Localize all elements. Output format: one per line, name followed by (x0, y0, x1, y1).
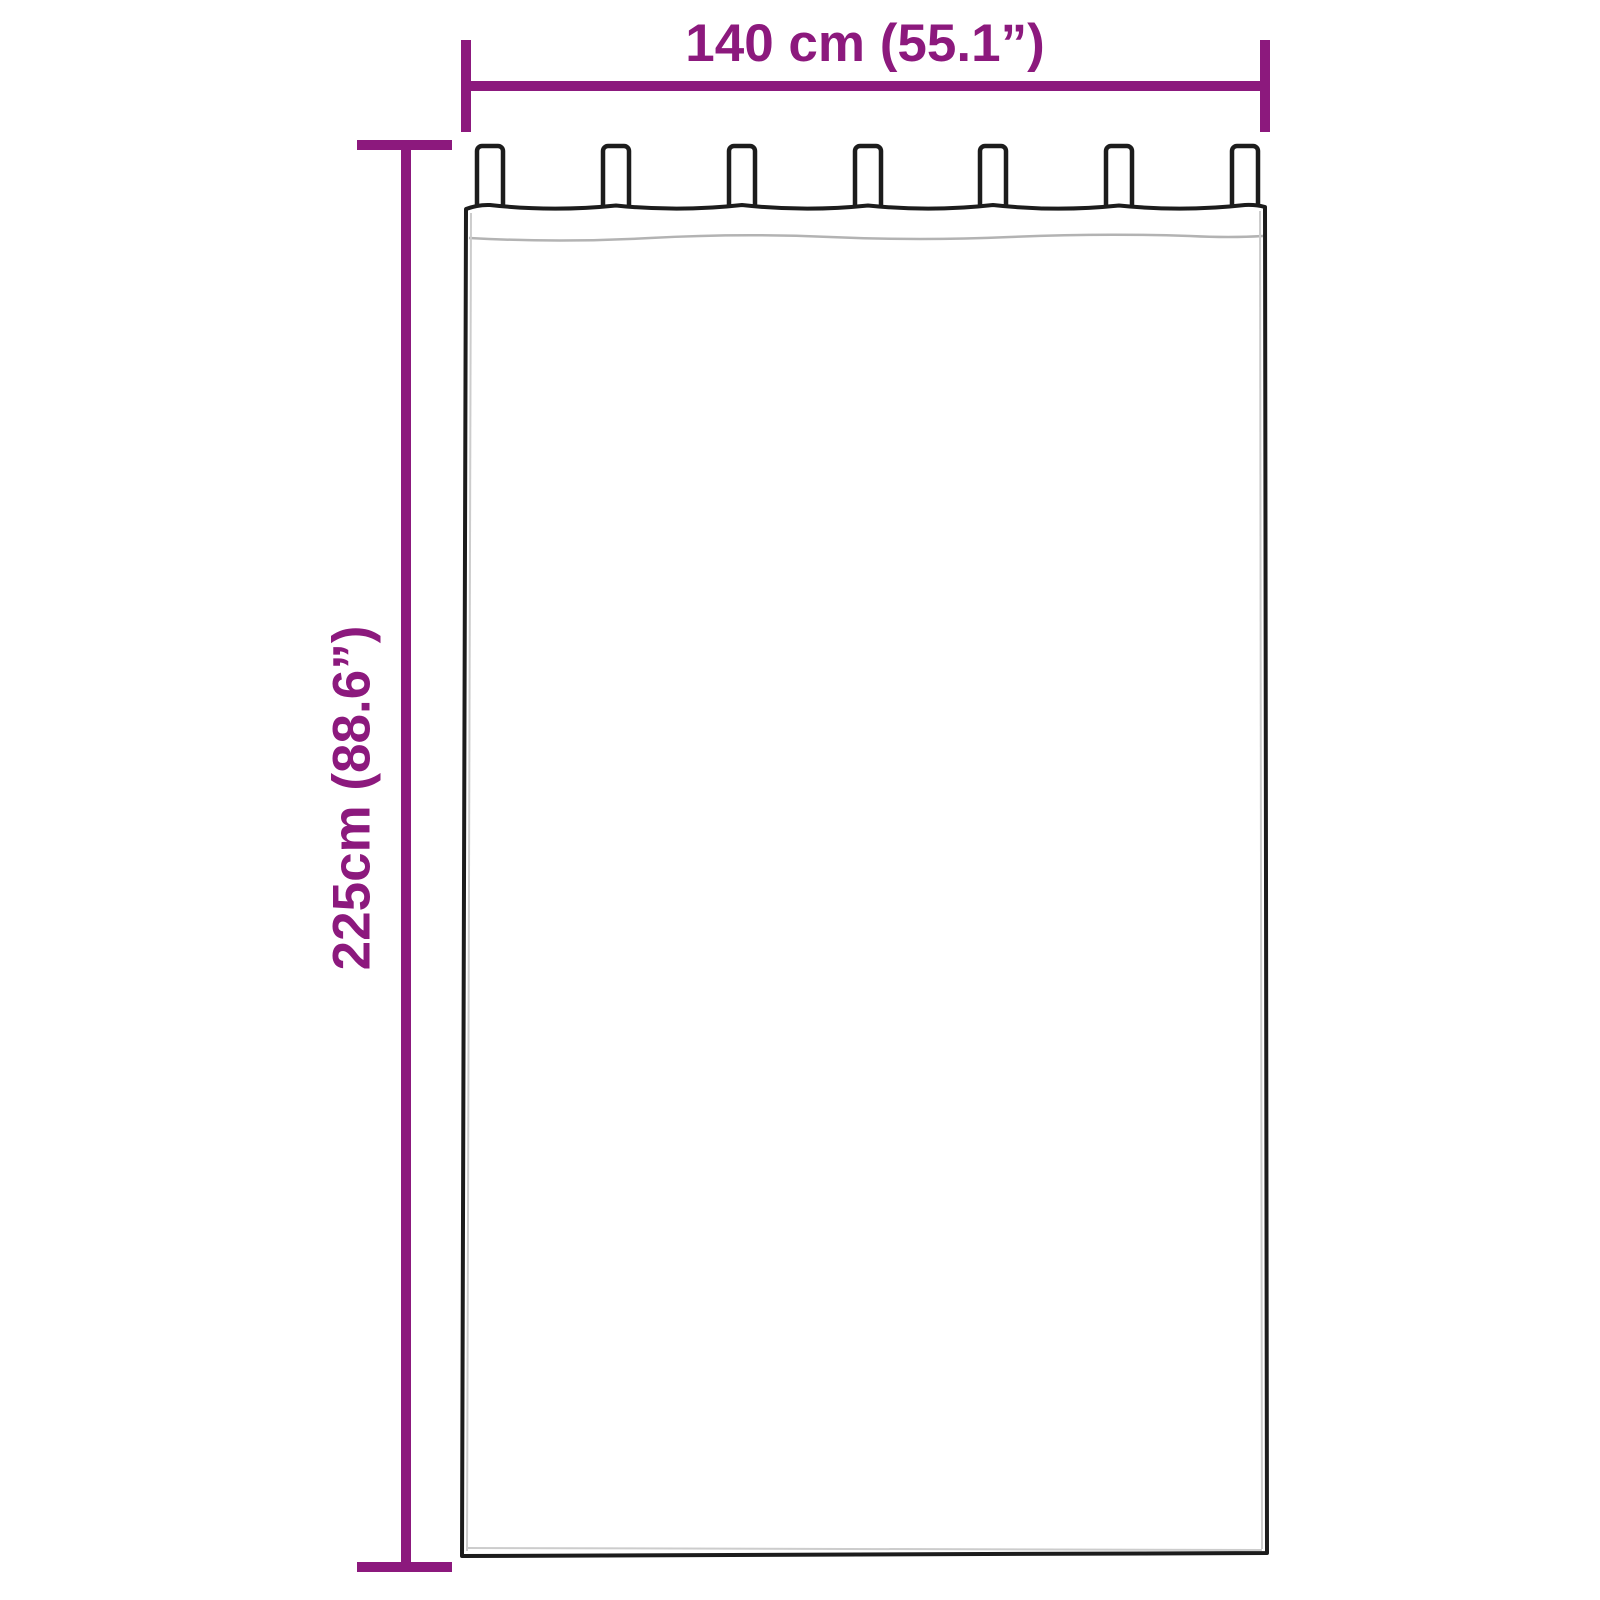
product-dimension-diagram: 140 cm (55.1”) 225cm (88.6”) (0, 0, 1600, 1600)
curtain-illustration (0, 0, 1600, 1600)
curtain-body (462, 205, 1267, 1556)
